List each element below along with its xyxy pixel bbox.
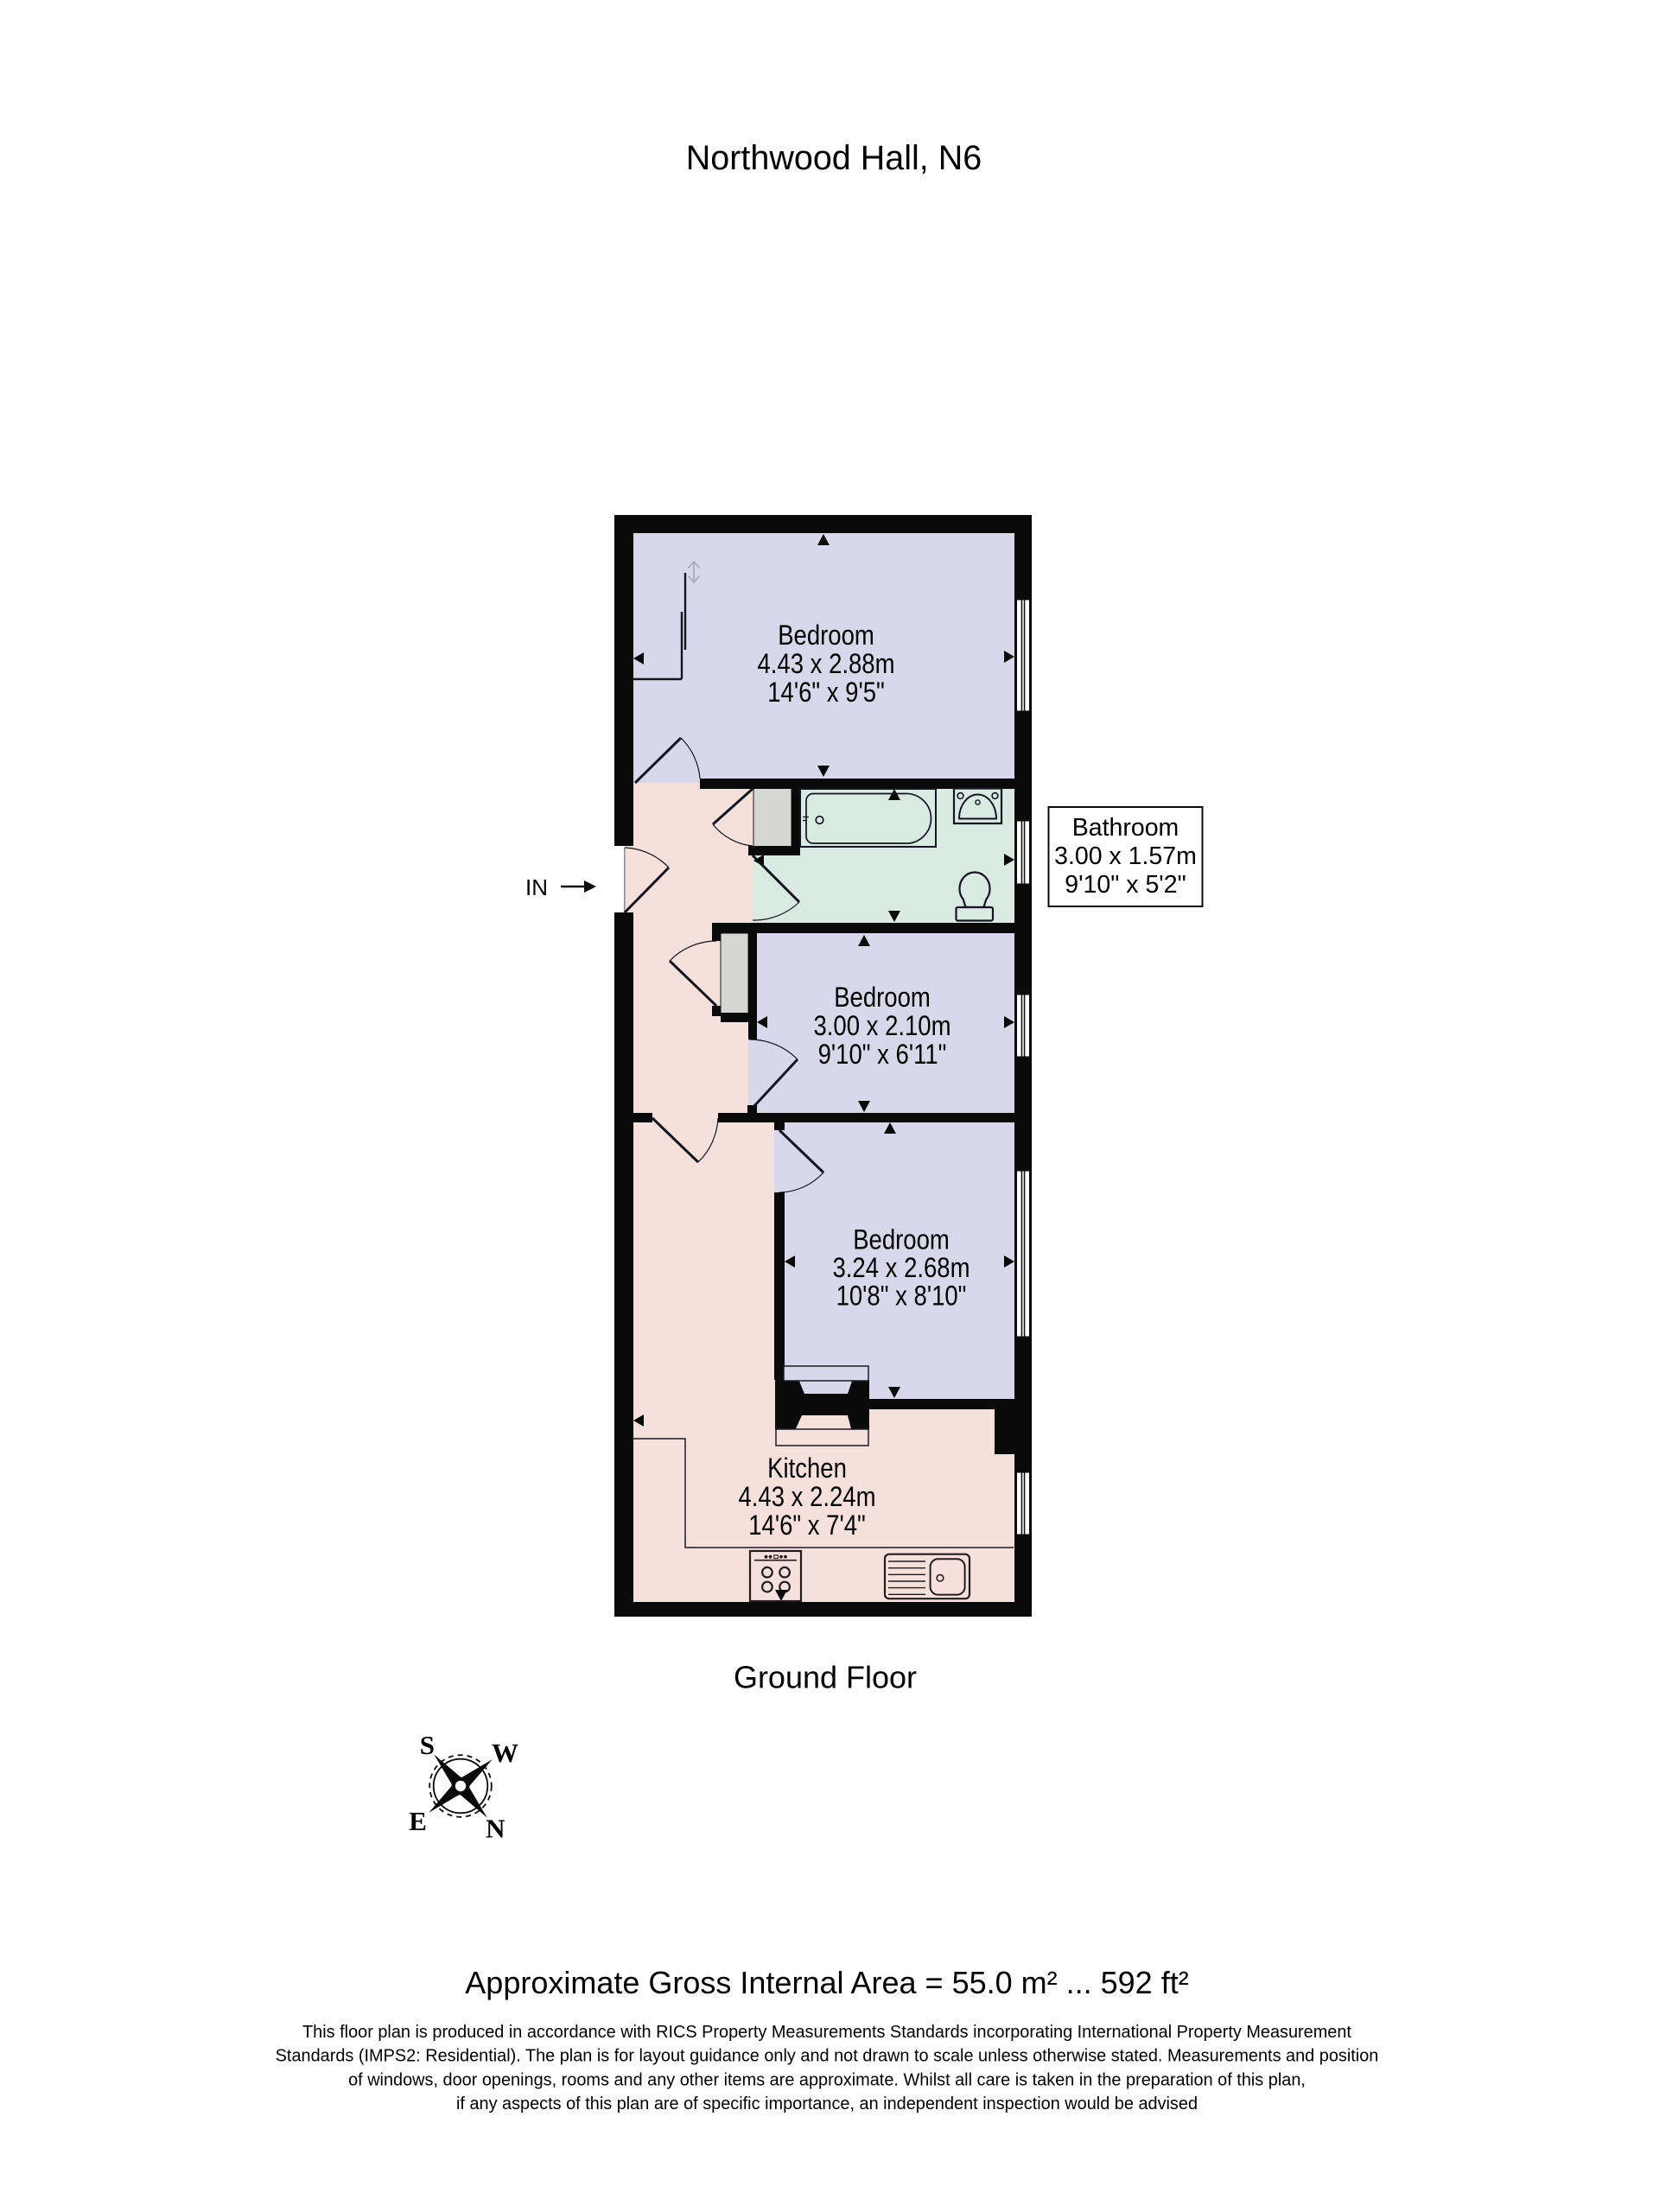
- svg-text:IN: IN: [525, 874, 548, 900]
- svg-text:N: N: [486, 1813, 505, 1843]
- svg-text:Ground Floor: Ground Floor: [734, 1660, 917, 1695]
- svg-text:Bathroom: Bathroom: [1072, 814, 1179, 842]
- svg-text:3.24 x 2.68m: 3.24 x 2.68m: [832, 1253, 970, 1283]
- svg-text:10'8" x 8'10": 10'8" x 8'10": [836, 1281, 967, 1312]
- svg-text:Bedroom: Bedroom: [853, 1225, 950, 1255]
- svg-text:Standards (IMPS2: Residential): Standards (IMPS2: Residential). The plan…: [276, 2047, 1379, 2066]
- svg-text:9'10" x 5'2": 9'10" x 5'2": [1065, 871, 1186, 899]
- svg-text:S: S: [420, 1730, 435, 1760]
- svg-text:4.43 x 2.24m: 4.43 x 2.24m: [738, 1482, 875, 1512]
- svg-text:of windows, door openings, roo: of windows, door openings, rooms and any…: [348, 2070, 1306, 2089]
- svg-text:This floor plan is produced in: This floor plan is produced in accordanc…: [302, 2023, 1351, 2042]
- svg-text:Approximate Gross Internal Are: Approximate Gross Internal Area = 55.0 m…: [465, 1965, 1188, 2000]
- svg-text:14'6" x 7'4": 14'6" x 7'4": [748, 1510, 866, 1541]
- svg-text:W: W: [492, 1738, 518, 1768]
- svg-text:Bedroom: Bedroom: [778, 620, 874, 651]
- svg-text:3.00 x 1.57m: 3.00 x 1.57m: [1054, 842, 1197, 870]
- svg-text:14'6" x 9'5": 14'6" x 9'5": [767, 677, 885, 708]
- svg-text:Kitchen: Kitchen: [767, 1453, 847, 1484]
- svg-text:Northwood Hall, N6: Northwood Hall, N6: [686, 139, 982, 177]
- svg-text:4.43 x 2.88m: 4.43 x 2.88m: [757, 649, 894, 679]
- svg-text:3.00 x 2.10m: 3.00 x 2.10m: [813, 1011, 950, 1041]
- svg-text:Bedroom: Bedroom: [834, 982, 931, 1013]
- svg-text:if any aspects of this plan ar: if any aspects of this plan are of speci…: [456, 2094, 1198, 2113]
- svg-text:E: E: [409, 1806, 427, 1836]
- svg-text:9'10" x 6'11": 9'10" x 6'11": [818, 1039, 947, 1070]
